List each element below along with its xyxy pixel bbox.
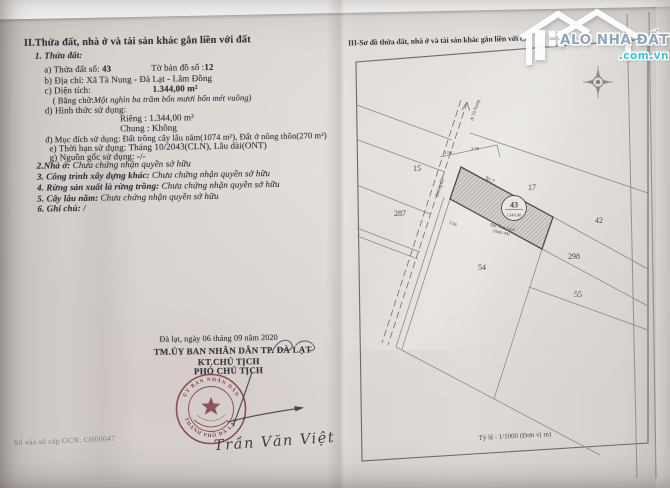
- section-label: 5. Cây lâu năm:: [37, 193, 101, 204]
- document-photo: II.Thửa đất, nhà ở và tài sản khác gắn l…: [0, 0, 670, 488]
- date-line: Đà lạt, ngày 06 tháng 09 năm 2020: [159, 333, 277, 344]
- section2-title: II.Thửa đất, nhà ở và tài sản khác gắn l…: [24, 34, 251, 49]
- field-label: Tờ bản đồ số :: [151, 62, 204, 73]
- section-value: Chưa chứng nhận quyền sở hữu: [73, 158, 191, 170]
- field-parcel-number: a) Thửa đất số: 43: [44, 63, 111, 74]
- section-notes: 6. Ghi chú: /: [37, 203, 85, 214]
- field-use-private: Riêng : 1.344,00 m²: [120, 112, 194, 123]
- section-label: 6. Ghi chú:: [37, 203, 83, 214]
- field-label: a) Thửa đất số:: [44, 64, 102, 75]
- field-use-form: d) Hình thức sử dụng:: [45, 104, 127, 115]
- subsection-title: 1. Thửa đất:: [35, 50, 82, 61]
- watermark-brand-text: ALO NHÀ ĐẤT: [560, 32, 669, 48]
- field-value: Một nghìn ba trăm bốn mươi bốn mét vuông…: [94, 92, 252, 104]
- pen-arrowhead: [294, 406, 304, 412]
- signature-strokes: [195, 360, 415, 470]
- field-label: b) Địa chỉ:: [44, 75, 86, 86]
- section-label: 3. Công trình xây dựng khác:: [37, 170, 152, 182]
- field-value: 43: [102, 63, 111, 73]
- field-map-sheet: Tờ bản đồ số :12: [151, 62, 214, 73]
- field-value: 12: [204, 62, 213, 72]
- section-label: 2.Nhà ở:: [37, 160, 73, 171]
- section-perennial: 5. Cây lâu năm: Chưa chứng nhận quyền sở…: [37, 191, 219, 204]
- initial-signature: [266, 333, 326, 361]
- section-value: Chưa chứng nhận quyền sở hữu: [152, 168, 270, 180]
- field-label: ( Bằng chữ:: [53, 95, 94, 106]
- section-value: Chưa chứng nhận quyền sở hữu: [162, 179, 280, 191]
- field-area-words: ( Bằng chữ:Một nghìn ba trăm bốn mươi bố…: [53, 92, 252, 105]
- field-value: Tháng 10/2043(CLN), Lâu dài(ONT): [129, 140, 267, 152]
- watermark: ALO NHÀ ĐẤT .com.vn: [520, 2, 670, 74]
- section-value: /: [83, 203, 86, 213]
- section-value: Chưa chứng nhận quyền sở hữu: [101, 191, 219, 203]
- section-label: 4. Rừng sản xuất là rừng trồng:: [37, 181, 162, 193]
- watermark-domain-text: .com.vn: [619, 50, 669, 62]
